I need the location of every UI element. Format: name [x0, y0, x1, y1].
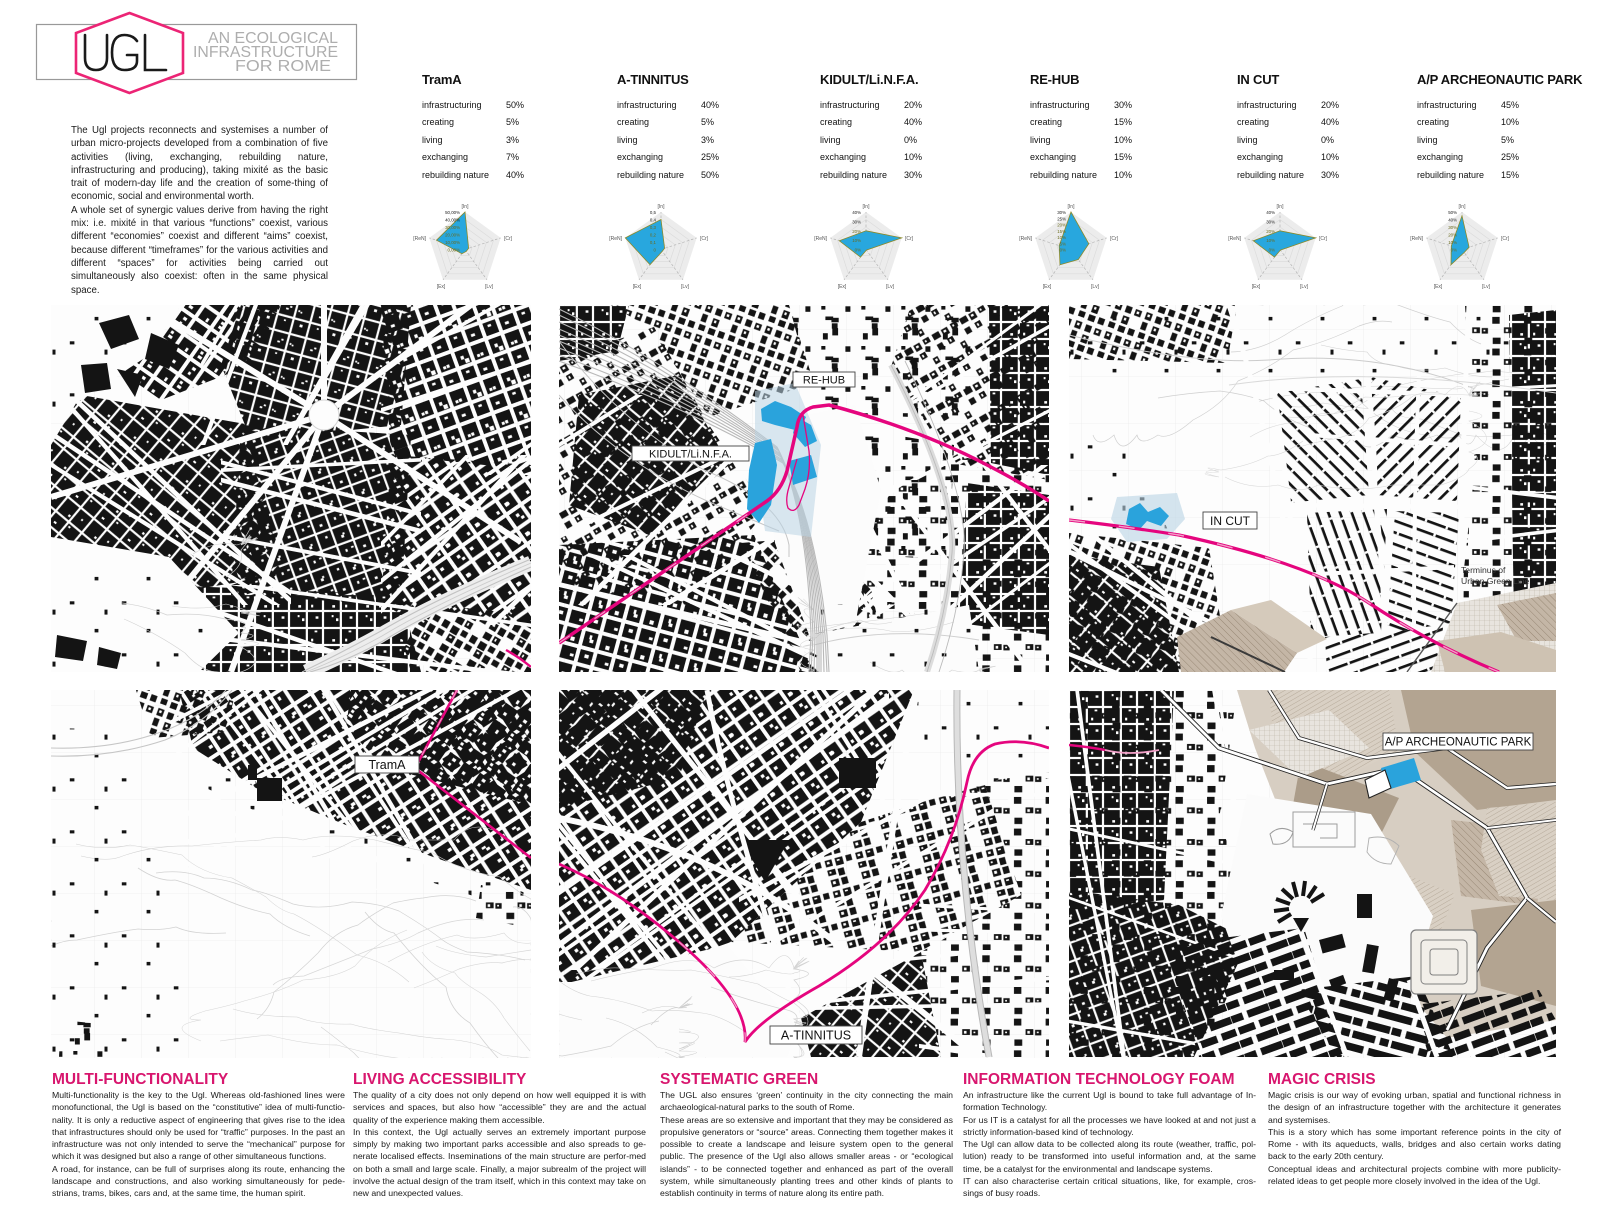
svg-text:[ReN]: [ReN]	[413, 236, 426, 242]
svg-text:[Lv]: [Lv]	[681, 284, 690, 290]
svg-text:20%: 20%	[1448, 233, 1457, 238]
svg-text:0,1: 0,1	[650, 240, 657, 245]
svg-text:[Cr]: [Cr]	[700, 236, 709, 242]
svg-text:40%: 40%	[1448, 218, 1457, 223]
svg-text:[Cr]: [Cr]	[1319, 236, 1328, 242]
svg-text:[ReN]: [ReN]	[1019, 236, 1032, 242]
svg-text:[Cr]: [Cr]	[905, 236, 914, 242]
svg-text:10%: 10%	[852, 238, 861, 243]
svg-text:0%: 0%	[1269, 248, 1275, 253]
svg-text:[ReN]: [ReN]	[609, 236, 622, 242]
svg-text:[ReN]: [ReN]	[814, 236, 827, 242]
svg-text:40%: 40%	[852, 210, 861, 215]
svg-text:TramA: TramA	[368, 758, 406, 772]
svg-text:[Ex]: [Ex]	[1043, 284, 1052, 290]
svg-text:0,00%: 0,00%	[448, 248, 461, 253]
svg-text:[Lv]: [Lv]	[1091, 284, 1100, 290]
svg-text:[Ex]: [Ex]	[437, 284, 446, 290]
svg-text:40%: 40%	[1266, 210, 1275, 215]
svg-text:[ReN]: [ReN]	[1228, 236, 1241, 242]
svg-text:20,00%: 20,00%	[445, 233, 460, 238]
svg-text:A/P ARCHEONAUTIC PARK: A/P ARCHEONAUTIC PARK	[1385, 737, 1532, 749]
svg-text:[Ex]: [Ex]	[1434, 284, 1443, 290]
svg-text:[In]: [In]	[1068, 204, 1076, 210]
svg-text:[In]: [In]	[863, 204, 871, 210]
svg-text:20%: 20%	[1266, 229, 1275, 234]
svg-text:[Lv]: [Lv]	[1300, 284, 1309, 290]
svg-text:10%: 10%	[1266, 238, 1275, 243]
svg-text:30,00%: 30,00%	[445, 225, 460, 230]
svg-text:[Lv]: [Lv]	[1482, 284, 1491, 290]
svg-text:0%: 0%	[855, 248, 861, 253]
svg-text:50,00%: 50,00%	[445, 210, 460, 215]
svg-text:30%: 30%	[1057, 210, 1066, 215]
svg-text:0,4: 0,4	[650, 218, 657, 223]
svg-text:0,3: 0,3	[650, 225, 657, 230]
svg-text:30%: 30%	[1448, 225, 1457, 230]
svg-text:0%: 0%	[1451, 248, 1457, 253]
svg-text:A-TINNITUS: A-TINNITUS	[781, 1029, 851, 1043]
svg-text:[Cr]: [Cr]	[504, 236, 513, 242]
svg-text:0,5: 0,5	[650, 210, 657, 215]
svg-text:FOR ROME: FOR ROME	[235, 58, 331, 75]
svg-text:5%: 5%	[1060, 241, 1066, 246]
svg-text:15%: 15%	[1057, 229, 1066, 234]
svg-text:40,00%: 40,00%	[445, 218, 460, 223]
svg-text:20%: 20%	[1057, 223, 1066, 228]
svg-text:Urban Green Line: Urban Green Line	[1461, 576, 1530, 586]
svg-text:20%: 20%	[852, 229, 861, 234]
svg-text:[Ex]: [Ex]	[633, 284, 642, 290]
svg-text:0%: 0%	[1060, 248, 1066, 253]
svg-text:[Cr]: [Cr]	[1110, 236, 1119, 242]
svg-text:30%: 30%	[852, 219, 861, 224]
svg-text:[In]: [In]	[1277, 204, 1285, 210]
svg-text:[ReN]: [ReN]	[1410, 236, 1423, 242]
svg-text:[In]: [In]	[1459, 204, 1467, 210]
svg-text:Terminus of: Terminus of	[1461, 565, 1506, 575]
svg-text:[In]: [In]	[462, 204, 470, 210]
svg-text:[Ex]: [Ex]	[1252, 284, 1261, 290]
svg-text:10%: 10%	[1057, 235, 1066, 240]
svg-text:50%: 50%	[1448, 210, 1457, 215]
svg-text:25%: 25%	[1057, 216, 1066, 221]
svg-text:10%: 10%	[1448, 240, 1457, 245]
svg-text:30%: 30%	[1266, 219, 1275, 224]
svg-text:[Lv]: [Lv]	[485, 284, 494, 290]
svg-text:0,2: 0,2	[650, 233, 657, 238]
svg-text:RE-HUB: RE-HUB	[803, 374, 845, 386]
svg-text:10,00%: 10,00%	[445, 240, 460, 245]
svg-text:[Cr]: [Cr]	[1501, 236, 1510, 242]
svg-text:KIDULT/Li.N.F.A.: KIDULT/Li.N.F.A.	[649, 448, 732, 460]
svg-text:[Lv]: [Lv]	[886, 284, 895, 290]
svg-text:[Ex]: [Ex]	[838, 284, 847, 290]
svg-text:IN CUT: IN CUT	[1210, 514, 1251, 528]
svg-text:[In]: [In]	[658, 204, 666, 210]
